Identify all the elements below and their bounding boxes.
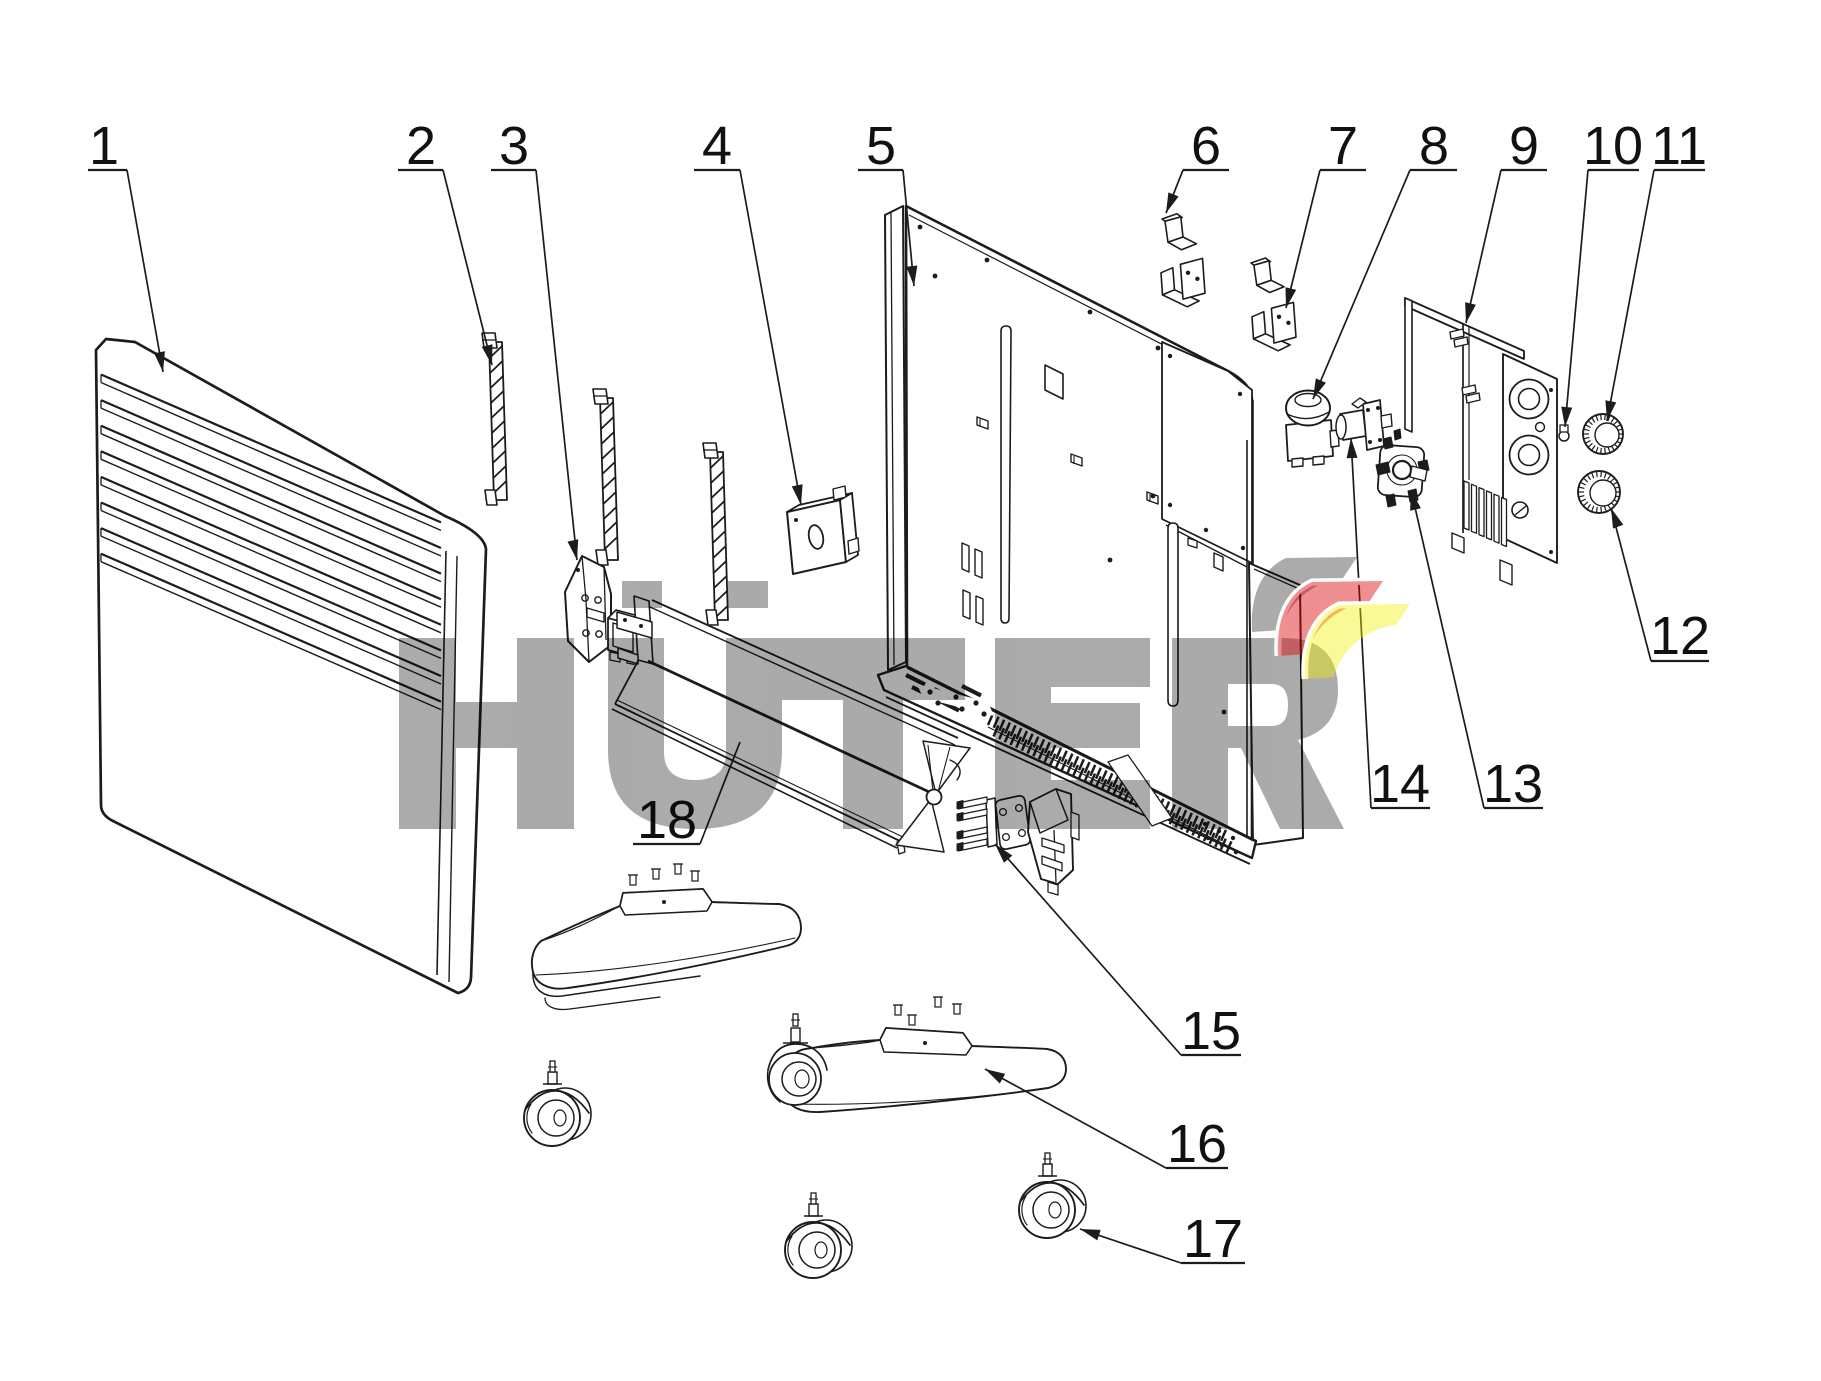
svg-text:15: 15 [1181, 1001, 1241, 1061]
svg-text:1: 1 [89, 116, 119, 176]
svg-text:2: 2 [406, 116, 436, 176]
svg-text:14: 14 [1370, 754, 1430, 814]
svg-text:3: 3 [499, 116, 529, 176]
svg-text:5: 5 [866, 116, 896, 176]
svg-text:7: 7 [1328, 116, 1358, 176]
svg-text:17: 17 [1183, 1209, 1243, 1269]
svg-text:13: 13 [1483, 754, 1543, 814]
svg-text:9: 9 [1509, 116, 1539, 176]
svg-text:12: 12 [1650, 606, 1710, 666]
svg-text:11: 11 [1651, 116, 1707, 176]
svg-text:6: 6 [1191, 116, 1221, 176]
svg-text:8: 8 [1419, 116, 1449, 176]
svg-text:4: 4 [702, 116, 732, 176]
svg-text:16: 16 [1167, 1114, 1227, 1174]
svg-text:10: 10 [1583, 116, 1643, 176]
